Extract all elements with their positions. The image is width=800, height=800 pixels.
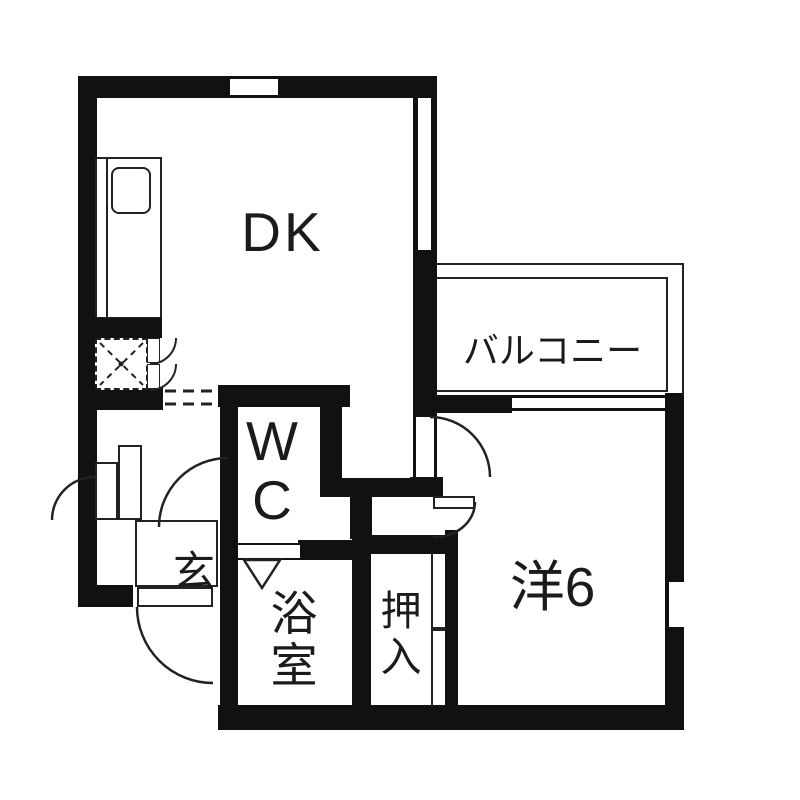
label-bathroom-char2: 室 — [271, 639, 318, 692]
label-western-room: 洋6 — [495, 542, 610, 622]
label-closet-char2: 入 — [381, 634, 422, 680]
front-door-swing-arc — [137, 607, 213, 683]
hall-door-swing-arc — [159, 458, 228, 527]
stove-hatch-center-dot — [119, 362, 124, 367]
label-balcony: バルコニー — [450, 322, 655, 374]
meter-box-door-arc — [52, 477, 95, 520]
bath-door-triangle — [244, 560, 280, 588]
label-entrance: 玄 — [168, 538, 220, 599]
storage-door-swing-arc — [433, 502, 475, 537]
label-toilet-line2: C — [252, 469, 292, 531]
label-toilet-line1: W — [246, 410, 298, 472]
label-dining-kitchen: DK — [230, 200, 335, 264]
floorplan-canvas: DK バルコニー 洋6 WC 玄 浴室 押入 — [0, 0, 800, 800]
cabinet-door-arc-lower — [150, 364, 176, 390]
symbol-overlay — [0, 0, 800, 800]
label-bathroom: 浴室 — [266, 588, 322, 692]
cabinet-door-arc-upper — [150, 338, 176, 364]
label-closet-char1: 押 — [381, 588, 422, 634]
label-toilet: WC — [222, 412, 322, 530]
label-bathroom-char1: 浴 — [271, 587, 318, 640]
western-room-door-swing-arc — [430, 417, 490, 477]
label-closet: 押入 — [377, 588, 425, 680]
